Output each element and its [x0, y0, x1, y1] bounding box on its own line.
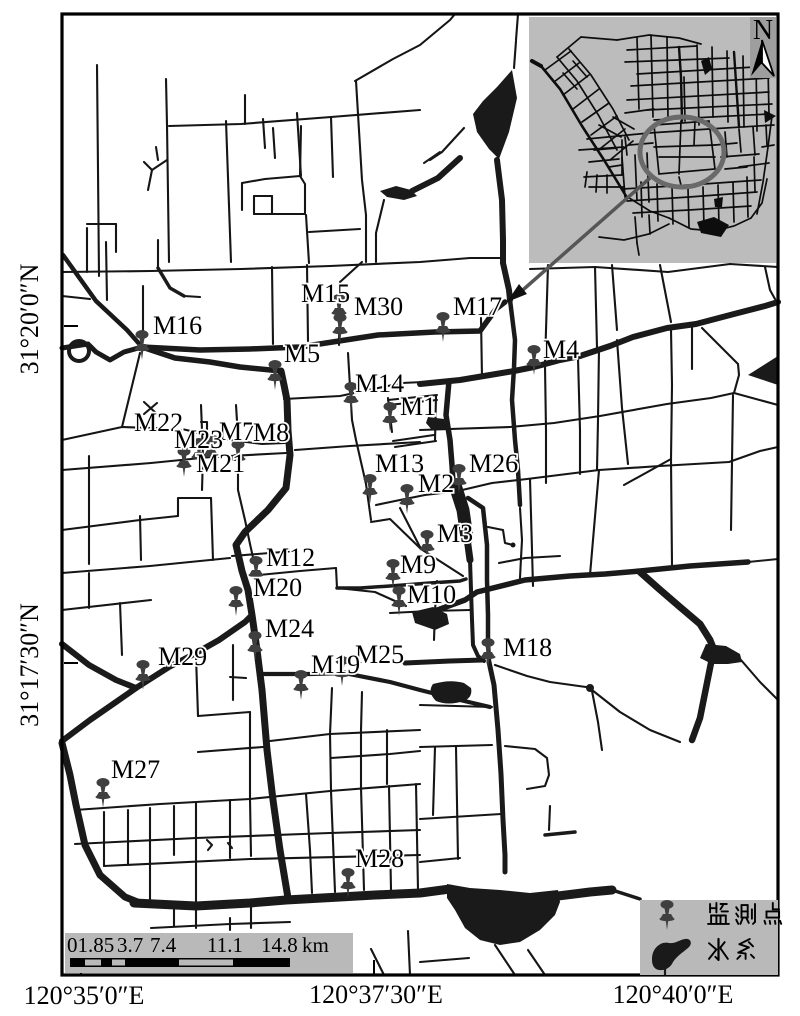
svg-text:M10: M10 — [407, 580, 456, 609]
svg-text:M28: M28 — [355, 844, 404, 873]
svg-text:31°17′30″N: 31°17′30″N — [15, 603, 44, 727]
svg-text:M7: M7 — [219, 417, 255, 446]
svg-text:M26: M26 — [469, 449, 518, 478]
svg-text:M3: M3 — [437, 519, 473, 548]
svg-text:M20: M20 — [253, 573, 302, 602]
svg-text:M16: M16 — [153, 311, 202, 340]
svg-text:M27: M27 — [111, 755, 160, 784]
svg-text:M25: M25 — [355, 640, 404, 669]
svg-text:31°20′0″N: 31°20′0″N — [15, 263, 44, 374]
svg-text:M21: M21 — [196, 449, 245, 478]
svg-text:M4: M4 — [543, 335, 579, 364]
svg-text:M15: M15 — [301, 279, 350, 308]
svg-text:120°35′0″E: 120°35′0″E — [24, 981, 145, 1010]
svg-text:M5: M5 — [284, 339, 320, 368]
svg-text:M1: M1 — [400, 392, 436, 421]
svg-text:km: km — [302, 933, 329, 957]
svg-text:01.85: 01.85 — [67, 933, 114, 957]
svg-text:M19: M19 — [311, 650, 360, 679]
svg-text:M2: M2 — [418, 469, 454, 498]
svg-text:M12: M12 — [266, 543, 315, 572]
svg-text:M13: M13 — [375, 449, 424, 478]
svg-text:7.4: 7.4 — [150, 933, 177, 957]
svg-text:M18: M18 — [503, 633, 552, 662]
svg-text:120°37′30″E: 120°37′30″E — [309, 980, 443, 1009]
svg-text:120°40′0″E: 120°40′0″E — [613, 980, 734, 1009]
svg-text:M24: M24 — [265, 614, 314, 643]
svg-text:M14: M14 — [355, 369, 404, 398]
svg-text:14.8: 14.8 — [261, 933, 298, 957]
svg-text:M9: M9 — [400, 550, 436, 579]
svg-text:M29: M29 — [158, 642, 207, 671]
svg-text:M30: M30 — [354, 292, 403, 321]
svg-text:3.7: 3.7 — [117, 933, 143, 957]
svg-text:M8: M8 — [253, 418, 289, 447]
svg-text:11.1: 11.1 — [207, 933, 243, 957]
svg-text:M17: M17 — [453, 292, 502, 321]
